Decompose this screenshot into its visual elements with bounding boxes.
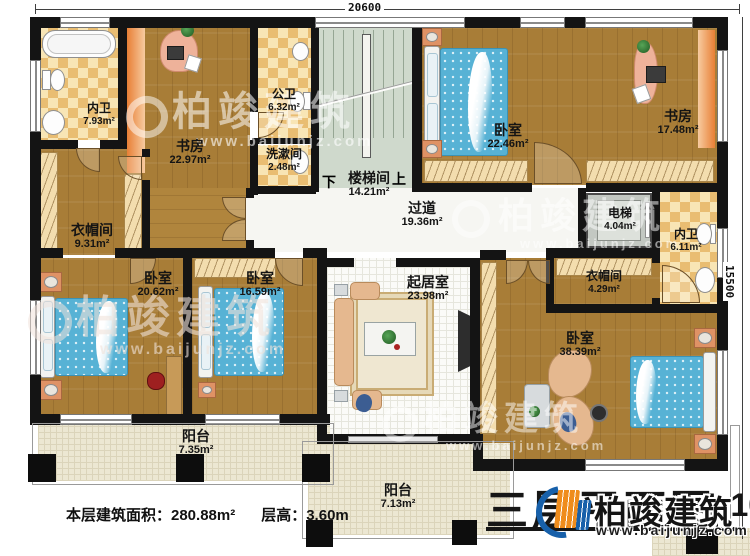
wall: [100, 140, 127, 149]
wall: [470, 258, 480, 438]
monitor-icon: [167, 46, 184, 60]
room-label-xishu: 洗漱间2.48m²: [266, 148, 302, 173]
room-label-woshi1: 卧室22.46m²: [488, 122, 529, 151]
window: [585, 459, 685, 471]
room-label-neiwei1: 内卫7.93m²: [83, 102, 115, 127]
column: [176, 454, 204, 482]
wall: [246, 188, 254, 198]
pillow: [43, 301, 53, 333]
nightstand: [198, 382, 216, 398]
wall: [252, 186, 316, 194]
wall: [578, 188, 586, 250]
logo-url-text: www.baijunjz.com: [596, 522, 749, 538]
wardrobe-hatch: [424, 160, 528, 182]
stair-up-label: 上: [392, 169, 406, 189]
window: [60, 17, 110, 28]
desk: [166, 356, 182, 418]
bed-headboard: [703, 352, 716, 432]
wall: [317, 248, 327, 444]
room-label-woshi3: 卧室16.59m²: [240, 270, 281, 299]
room-label-qiju: 起居室23.98m²: [407, 274, 449, 303]
plant-icon: [382, 330, 396, 344]
elevator-door: [645, 202, 650, 238]
room-label-yimao1: 衣帽间9.31m²: [71, 222, 113, 251]
column: [28, 454, 56, 482]
column: [302, 454, 330, 482]
wall: [412, 17, 422, 192]
room-label-guodao: 过道19.36m²: [402, 200, 443, 229]
wall: [38, 140, 78, 149]
room-label-shufang2: 书房17.48m²: [658, 108, 699, 137]
dimension-label-right: 15500: [723, 262, 736, 301]
toilet-icon: [50, 69, 65, 91]
side-table: [334, 284, 348, 296]
dimension-line-top: [35, 9, 740, 10]
room-label-yangtai2: 阳台7.13m²: [381, 482, 416, 511]
sink-icon: [42, 110, 65, 135]
wall: [142, 149, 150, 157]
window: [30, 300, 41, 375]
sink-icon: [695, 267, 715, 293]
plant-icon: [529, 406, 540, 417]
wardrobe-hatch: [586, 160, 714, 182]
wall: [118, 17, 127, 149]
window: [30, 60, 41, 132]
room-label-woshi4: 卧室38.39m²: [560, 330, 601, 359]
wall: [250, 17, 258, 112]
nightstand: [694, 328, 716, 348]
wall: [327, 258, 354, 267]
wardrobe-hatch: [481, 262, 497, 434]
room-label-gongwei: 公卫6.32m²: [268, 88, 300, 113]
footer-stats: 本层建筑面积：280.88m²层高：3.60m: [66, 504, 375, 525]
wall: [396, 258, 480, 267]
pillow: [201, 292, 211, 328]
nightstand: [422, 140, 442, 158]
room-label-louti: 楼梯间14.21m²: [348, 170, 390, 199]
pillow: [43, 339, 53, 371]
room-label-yangtai1: 阳台7.35m²: [179, 428, 214, 457]
wall: [252, 138, 312, 144]
window: [315, 17, 465, 28]
window: [717, 50, 728, 142]
window: [585, 17, 693, 28]
wardrobe-hatch: [40, 152, 58, 254]
wall: [142, 180, 150, 252]
pillow: [201, 334, 211, 370]
window: [520, 17, 565, 28]
room-label-yimao2: 衣帽间4.29m²: [586, 270, 622, 295]
dimension-label-top: 20600: [345, 1, 384, 14]
dimension-line-right: [742, 17, 743, 539]
wall: [652, 188, 660, 263]
nightstand: [40, 380, 62, 400]
floor-area-text: 本层建筑面积：280.88m²: [66, 507, 235, 524]
round-table: [590, 404, 608, 422]
closet-strip: [698, 30, 715, 148]
bathtub-inner: [47, 34, 111, 54]
decor-dot: [394, 344, 400, 350]
column: [452, 520, 477, 545]
stair-down-label: 下: [322, 172, 336, 192]
wall: [311, 17, 319, 192]
nightstand: [422, 28, 442, 46]
armchair: [350, 282, 380, 300]
floor-height-text: 层高：3.60m: [261, 507, 349, 524]
sink-icon: [292, 42, 309, 61]
wall: [115, 248, 275, 258]
wall: [30, 248, 63, 258]
nightstand: [694, 434, 716, 454]
wall: [183, 252, 192, 424]
wall: [546, 304, 728, 313]
wall: [412, 183, 532, 192]
chair-red: [147, 372, 165, 390]
room-label-dianti: 电梯4.04m²: [604, 207, 636, 232]
room-label-neiwei2: 内卫6.11m²: [670, 228, 701, 253]
pillow: [427, 53, 438, 97]
floor-plan: 柏竣建筑 www.baijunjz.com 柏竣建筑 www.baijunjz.…: [0, 0, 750, 556]
window: [717, 350, 728, 435]
room-label-shufang1: 书房22.97m²: [170, 138, 211, 167]
wardrobe-hatch: [124, 174, 142, 252]
wall: [480, 250, 506, 260]
plant-icon: [637, 40, 650, 53]
monitor-icon: [646, 66, 666, 83]
dimension-tick: [739, 4, 740, 14]
dimension-tick: [35, 4, 36, 14]
sofa: [334, 298, 354, 386]
wall: [546, 248, 660, 258]
side-table: [334, 390, 348, 402]
room-label-woshi2: 卧室20.62m²: [138, 270, 179, 299]
nightstand: [40, 272, 62, 292]
